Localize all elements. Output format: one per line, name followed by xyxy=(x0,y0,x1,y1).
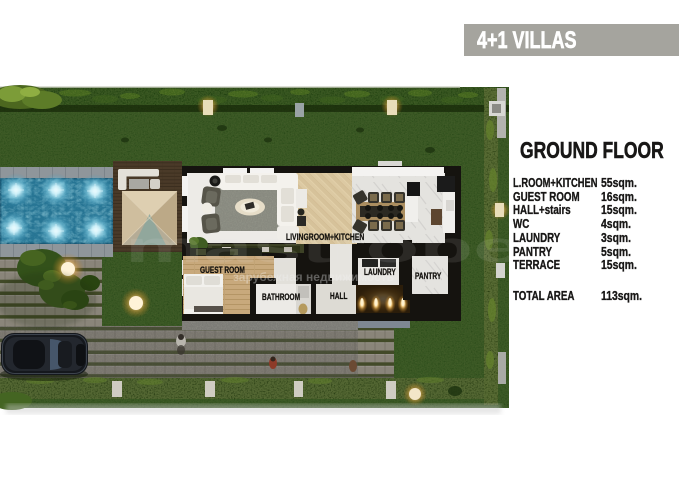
svg-text:HALL: HALL xyxy=(330,291,348,301)
svg-text:BATHROOM: BATHROOM xyxy=(262,292,300,302)
svg-text:GUEST ROOM: GUEST ROOM xyxy=(200,265,245,275)
svg-text:LAUNDRY: LAUNDRY xyxy=(364,267,396,277)
svg-text:PANTRY: PANTRY xyxy=(415,271,442,281)
svg-text:LIVINGROOM+KITCHEN: LIVINGROOM+KITCHEN xyxy=(286,232,364,242)
